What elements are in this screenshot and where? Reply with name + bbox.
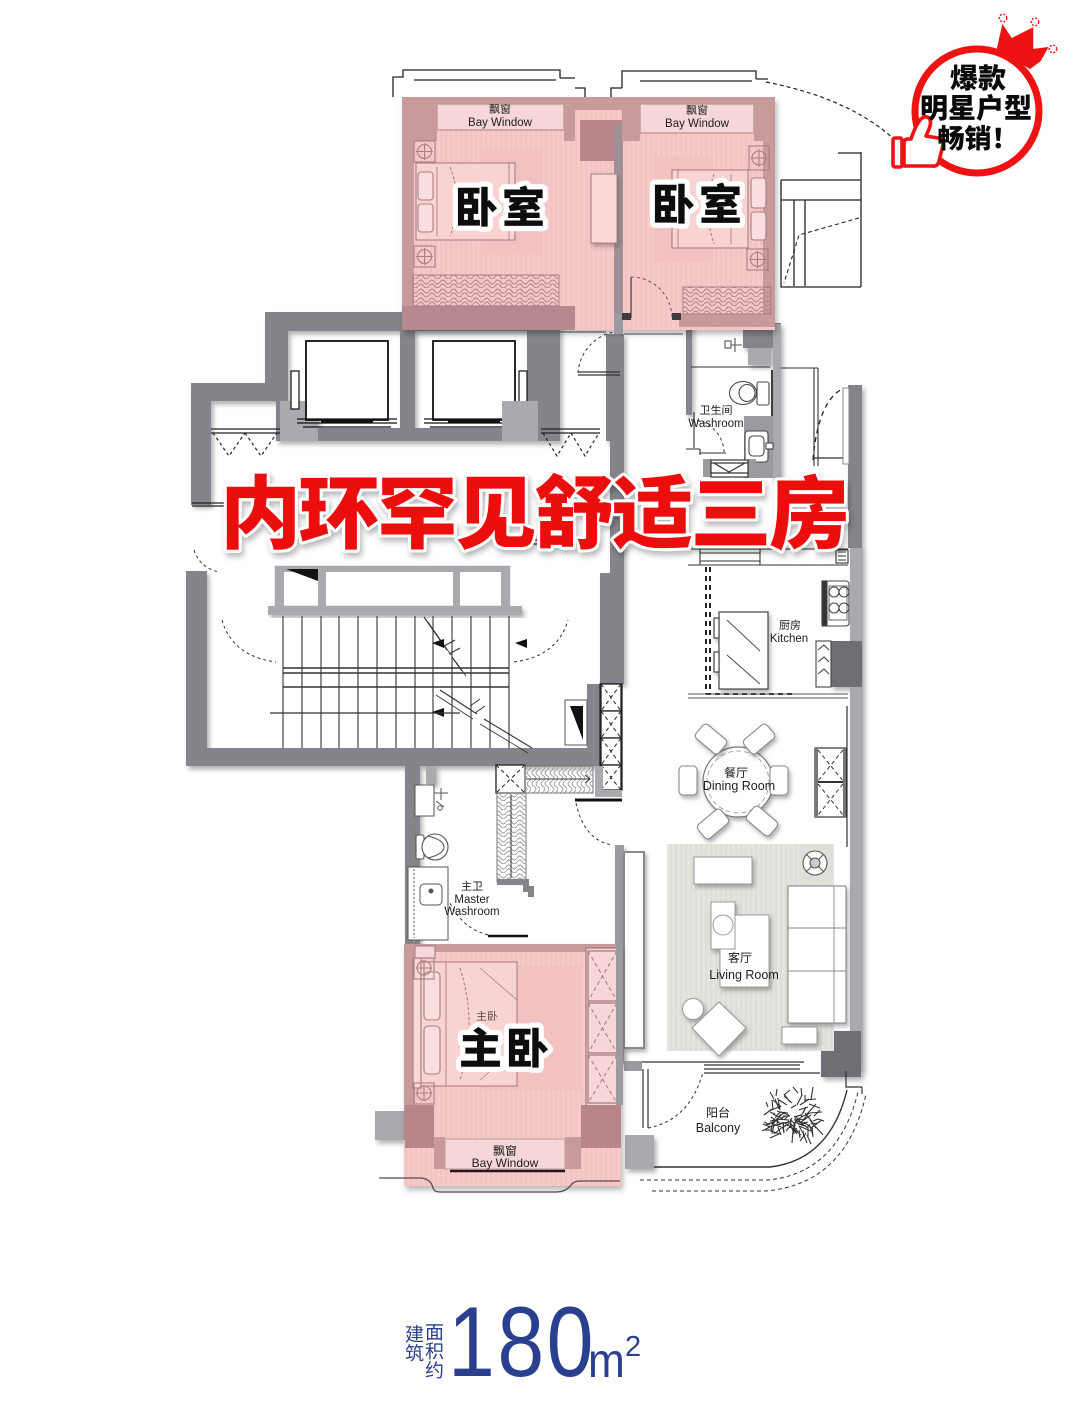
svg-text:Bay Window: Bay Window xyxy=(472,1156,539,1170)
svg-text:Washroom: Washroom xyxy=(688,418,743,430)
svg-text:Dining Room: Dining Room xyxy=(703,779,775,793)
svg-text:m: m xyxy=(588,1333,625,1387)
svg-text:Master: Master xyxy=(454,894,489,906)
svg-text:Living Room: Living Room xyxy=(709,968,778,982)
svg-text:Balcony: Balcony xyxy=(696,1121,741,1135)
svg-text:2: 2 xyxy=(625,1331,641,1363)
svg-text:Bay Window: Bay Window xyxy=(665,118,730,130)
svg-text:Kitchen: Kitchen xyxy=(770,633,808,645)
svg-text:Washroom: Washroom xyxy=(444,906,499,918)
svg-text:Bay Window: Bay Window xyxy=(468,117,533,129)
svg-text:180: 180 xyxy=(448,1288,596,1398)
